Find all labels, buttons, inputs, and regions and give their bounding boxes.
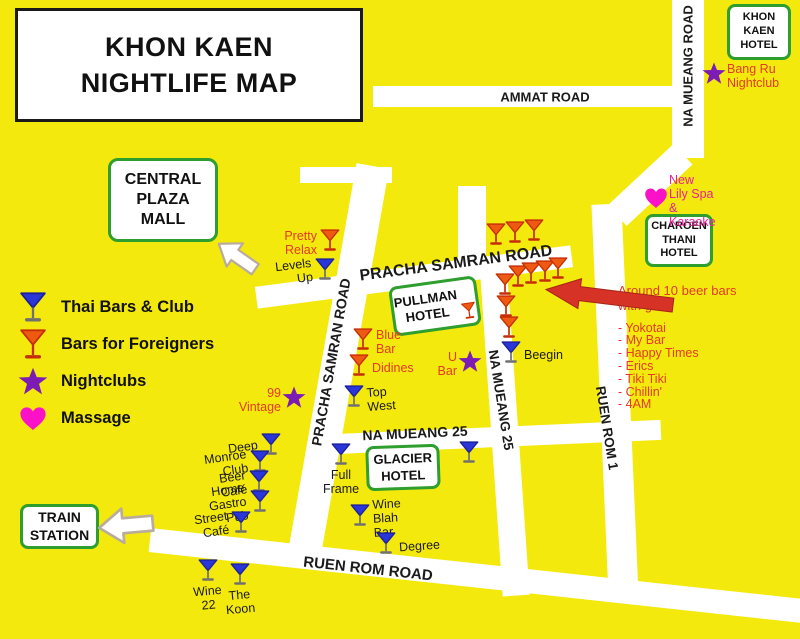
martini-blue-icon: [351, 504, 370, 527]
star-icon: [702, 62, 726, 85]
legend-item-massage: Massage: [16, 400, 214, 437]
beer-bar-item-4am: - 4AM: [618, 398, 737, 411]
marker-label-pretty-relax: Pretty Relax: [284, 229, 317, 257]
khon-kaen-nightlife-map: AMMAT ROADNA MUEANG ROADPRACHA SAMRAN RO…: [0, 0, 800, 639]
marker-label-top-west: Top West: [366, 384, 396, 414]
martini-red-icon: [350, 354, 369, 377]
glacier-hotel: GLACIER HOTEL: [365, 444, 441, 492]
legend-item-nightclubs: Nightclubs: [16, 363, 214, 400]
martini-blue-icon: [502, 341, 521, 364]
martini-blue-icon: [199, 559, 218, 582]
martini-red-icon: [497, 295, 516, 318]
train-station-label: TRAIN STATION: [30, 509, 89, 544]
legend-label-bars-for-foreigners: Bars for Foreigners: [61, 335, 214, 354]
central-plaza-mall: CENTRAL PLAZA MALL: [108, 158, 218, 242]
marker-label-street-caf: Street Café: [193, 509, 230, 541]
martini-red-icon: [506, 221, 525, 244]
khon-kaen-hotel: KHON KAEN HOTEL: [727, 4, 791, 60]
marker-label-beegin: Beegin: [524, 348, 563, 362]
marker-label-wine-22: Wine 22: [193, 583, 224, 613]
marker-label-didines: Didines: [372, 361, 414, 375]
martini-blue-icon: [460, 441, 479, 464]
marker-label-blue-bar: Blue Bar: [376, 328, 401, 356]
marker-label-99-vintage: 99 Vintage: [239, 386, 281, 414]
khon-kaen-hotel-label: KHON KAEN HOTEL: [740, 11, 777, 52]
martini-red-icon: [321, 229, 340, 252]
legend: Thai Bars & Club Bars for Foreigners Nig…: [16, 289, 214, 437]
road-label-na-mueang-road-1: NA MUEANG ROAD: [681, 5, 696, 127]
martini-blue-icon: [231, 563, 250, 586]
martini-red-icon: [461, 301, 477, 320]
legend-item-thai-bars-club: Thai Bars & Club: [16, 289, 214, 326]
central-plaza-arrow: [208, 229, 266, 284]
heart-icon: [19, 406, 47, 432]
pullman-hotel-label: PULLMAN HOTEL: [393, 287, 460, 328]
martini-blue-icon: [377, 532, 396, 555]
central-plaza-mall-label: CENTRAL PLAZA MALL: [125, 170, 201, 230]
marker-label-full-frame: Full Frame: [323, 468, 359, 496]
road-label-ammat-road-0: AMMAT ROAD: [500, 90, 589, 105]
glacier-hotel-label: GLACIER HOTEL: [373, 450, 433, 485]
marker-label-levels-up: Levels Up: [274, 256, 313, 288]
legend-label-nightclubs: Nightclubs: [61, 372, 146, 391]
martini-blue-icon: [20, 292, 46, 323]
martini-blue-icon: [345, 385, 364, 408]
map-title: KHON KAEN NIGHTLIFE MAP: [81, 29, 298, 102]
legend-label-massage: Massage: [61, 409, 131, 428]
marker-label-u-bar: U Bar: [438, 350, 457, 378]
marker-label-the-koon: The Koon: [224, 587, 256, 617]
heart-icon: [644, 188, 668, 210]
martini-blue-icon: [232, 511, 251, 534]
martini-red-icon: [354, 328, 373, 351]
legend-item-bars-for-foreigners: Bars for Foreigners: [16, 326, 214, 363]
martini-blue-icon: [316, 258, 335, 281]
martini-red-icon: [525, 219, 544, 242]
star-icon: [282, 386, 306, 409]
martini-red-icon: [20, 329, 46, 360]
beer-bar-item-tiki-tiki: - Tiki Tiki: [618, 373, 737, 386]
pracha-samran-top-stub: [300, 167, 392, 183]
marker-label-degree: Degree: [399, 538, 441, 555]
star-icon: [458, 350, 482, 373]
martini-blue-icon: [332, 443, 351, 466]
pullman-hotel: PULLMAN HOTEL: [388, 275, 482, 337]
star-icon: [18, 367, 48, 396]
martini-red-icon: [500, 316, 519, 339]
train-station-arrow: [95, 504, 156, 548]
beer-bars-list: - Yokotai- My Bar- Happy Times- Erics- T…: [618, 322, 737, 412]
beer-bar-item-erics: - Erics: [618, 360, 737, 373]
map-title-box: KHON KAEN NIGHTLIFE MAP: [15, 8, 363, 122]
martini-blue-icon: [251, 490, 270, 513]
marker-label-new-lily-spa-karaoke: New Lily Spa & Karaoke: [669, 173, 716, 229]
train-station: TRAIN STATION: [20, 504, 99, 549]
legend-label-thai-bars-club: Thai Bars & Club: [61, 298, 194, 317]
martini-red-icon: [487, 223, 506, 246]
marker-label-bang-ru-nightclub: Bang Ru Nightclub: [727, 62, 779, 90]
